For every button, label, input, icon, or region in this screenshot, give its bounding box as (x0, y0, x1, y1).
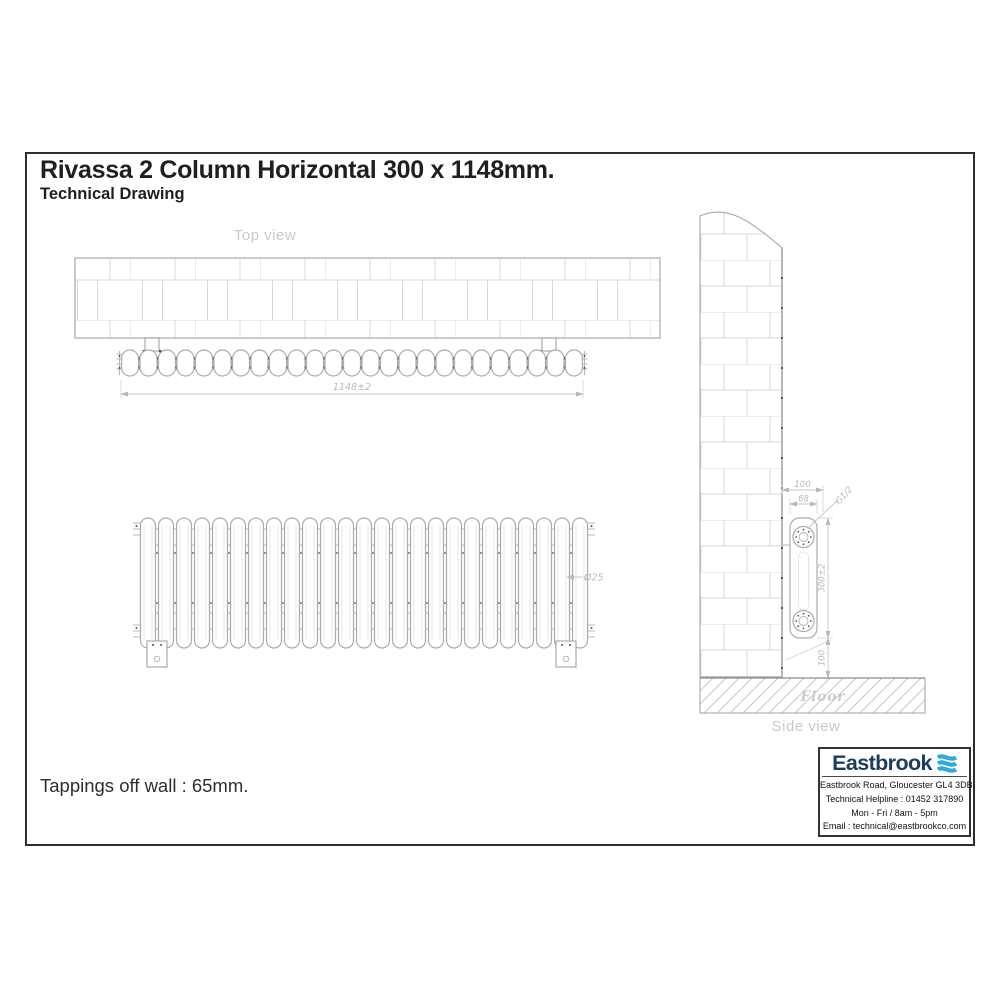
width-dim-text: 1148±2 (333, 382, 371, 393)
thread-dimension: G1/2 (809, 485, 855, 527)
top-view-section (455, 350, 472, 376)
floor-clearance-dim-text: 100 (818, 650, 828, 666)
front-view-column (465, 518, 480, 648)
brand-hours: Mon - Fri / 8am - 5pm (820, 807, 969, 821)
front-view-column (159, 518, 174, 648)
top-view-label: Top view (234, 227, 296, 244)
front-view-column (285, 518, 300, 648)
top-view-section (566, 350, 583, 376)
top-view-section (399, 350, 416, 376)
top-view-section (362, 350, 379, 376)
brand-logo-row: Eastbrook (822, 749, 967, 777)
top-view-section (270, 350, 287, 376)
top-view-section (214, 350, 231, 376)
front-view-column (501, 518, 516, 648)
front-view-column (195, 518, 210, 648)
brand-address: Eastbrook Road, Gloucester GL4 3DB (820, 779, 969, 793)
column-depth-dimension: 68 (790, 495, 817, 515)
front-view-column (141, 518, 156, 648)
top-view-section (122, 350, 139, 376)
top-view-section (251, 350, 268, 376)
top-view-section (473, 350, 490, 376)
front-view-column (339, 518, 354, 648)
column-depth-dim-text: 68 (798, 495, 809, 505)
front-view-foot (556, 641, 576, 667)
front-view-column (177, 518, 192, 648)
front-view-column (483, 518, 498, 648)
thread-dim-text: G1/2 (834, 485, 855, 507)
height-dim-text: 300±2 (818, 564, 828, 593)
front-view-drawing: Ø25 (133, 518, 604, 667)
floor-label: Floor (800, 689, 846, 705)
top-view-section (159, 350, 176, 376)
front-view-column (447, 518, 462, 648)
brand-logo-text: Eastbrook (832, 751, 932, 775)
front-view-column (555, 518, 570, 648)
side-view-drawing: 100 68 G1/2 300±2 100 (700, 212, 925, 735)
top-view-section (381, 350, 398, 376)
top-view-section (233, 350, 250, 376)
radiator-front-view (133, 518, 595, 648)
technical-drawing-page: Rivassa 2 Column Horizontal 300 x 1148mm… (0, 0, 1000, 1000)
front-view-column (537, 518, 552, 648)
front-view-column (411, 518, 426, 648)
front-view-column (267, 518, 282, 648)
waves-icon (937, 754, 957, 773)
front-view-column (429, 518, 444, 648)
front-view-foot (147, 641, 167, 667)
radiator-side-view (783, 518, 817, 638)
top-view-section (529, 350, 546, 376)
top-view-section (436, 350, 453, 376)
top-view-section (140, 350, 157, 376)
wall-side-view (700, 212, 782, 677)
top-view-section (288, 350, 305, 376)
front-view-column (249, 518, 264, 648)
front-view-column (213, 518, 228, 648)
radiator-top-view (122, 350, 583, 376)
top-view-section (307, 350, 324, 376)
front-view-column (231, 518, 246, 648)
top-view-drawing: Top view 1148±2 (75, 227, 660, 399)
top-view-section (177, 350, 194, 376)
top-view-section (325, 350, 342, 376)
side-view-label: Side view (772, 718, 841, 735)
top-view-section (510, 350, 527, 376)
top-view-section (418, 350, 435, 376)
brand-box: Eastbrook Eastbrook Road, Gloucester GL4… (818, 747, 971, 837)
wall-top-view (75, 258, 660, 338)
front-view-column (393, 518, 408, 648)
tube-dim-text: Ø25 (583, 573, 604, 584)
tappings-note: Tappings off wall : 65mm. (40, 775, 248, 797)
brand-helpline: Technical Helpline : 01452 317890 (820, 793, 969, 807)
width-dimension: 1148±2 (121, 380, 583, 399)
depth-dim-text: 100 (794, 480, 810, 490)
front-view-column (321, 518, 336, 648)
front-view-column (375, 518, 390, 648)
top-view-section (196, 350, 213, 376)
top-view-section (547, 350, 564, 376)
brand-email: Email : technical@eastbrookco.com (820, 820, 969, 834)
top-view-section (344, 350, 361, 376)
front-view-column (519, 518, 534, 648)
front-view-column (303, 518, 318, 648)
drawing-canvas: Top view 1148±2 (0, 0, 1000, 1000)
top-view-section (492, 350, 509, 376)
front-view-column (357, 518, 372, 648)
